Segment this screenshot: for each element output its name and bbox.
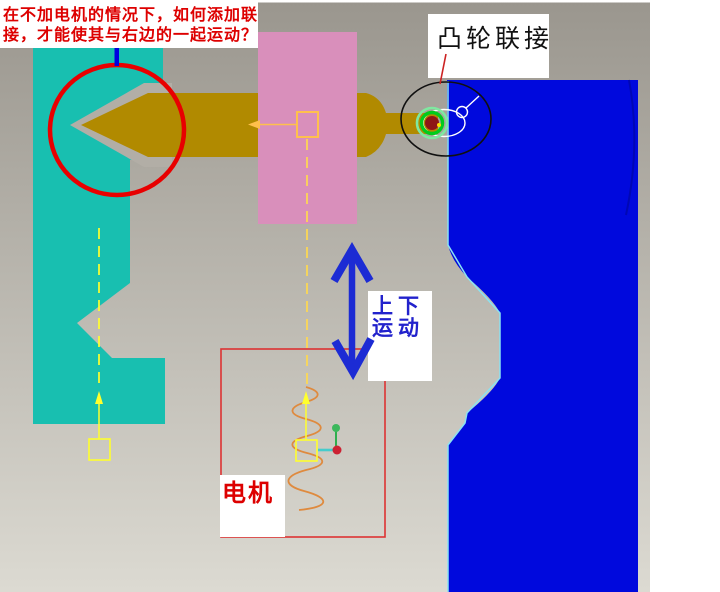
motion-label-line1: 上下 [372, 294, 424, 318]
motor-label: 电机 [222, 479, 274, 507]
triad-origin-ball [333, 446, 342, 455]
cam-joint-center[interactable] [425, 116, 439, 130]
cad-canvas[interactable]: 在不加电机的情况下，如何添加联 接，才能使其与右边的一起运动？ 凸轮联接 上下 … [0, 0, 720, 592]
cam-joint-label: 凸轮联接 [437, 24, 553, 53]
motion-label-line2: 运动 [372, 316, 424, 340]
joint-marker-dot [437, 123, 441, 127]
cad-viewport: 在不加电机的情况下，如何添加联 接，才能使其与右边的一起运动？ 凸轮联接 上下 … [0, 0, 720, 592]
question-text-line2: 接，才能使其与右边的一起运动？ [3, 25, 258, 44]
right-side-strip [650, 0, 720, 592]
triad-y-ball [332, 424, 340, 432]
question-text-line1: 在不加电机的情况下，如何添加联 [3, 5, 258, 24]
